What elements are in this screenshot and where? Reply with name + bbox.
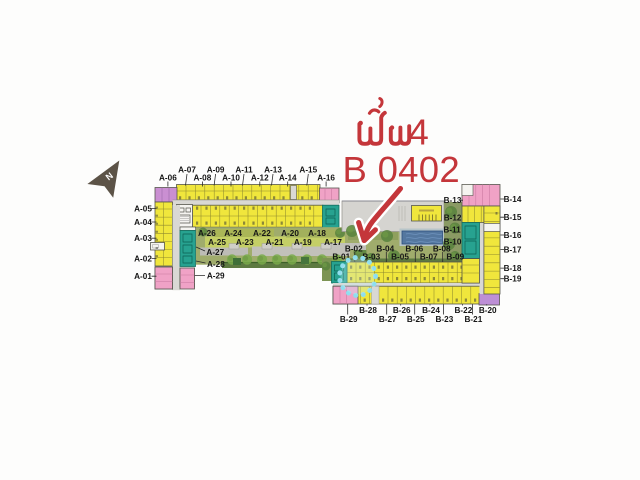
svg-text:A-18: A-18 bbox=[308, 229, 326, 238]
svg-text:B-13: B-13 bbox=[444, 196, 462, 205]
svg-text:B-19: B-19 bbox=[504, 275, 522, 284]
svg-text:B-05: B-05 bbox=[391, 252, 409, 261]
svg-text:B-15: B-15 bbox=[504, 213, 522, 222]
svg-text:B-09: B-09 bbox=[446, 252, 464, 261]
svg-text:B-28: B-28 bbox=[359, 306, 377, 315]
svg-text:B-25: B-25 bbox=[407, 315, 425, 324]
svg-text:A-03: A-03 bbox=[134, 234, 152, 243]
svg-text:A-25: A-25 bbox=[208, 238, 226, 247]
svg-text:B-23: B-23 bbox=[436, 315, 454, 324]
svg-text:B-14: B-14 bbox=[504, 195, 522, 204]
svg-text:B-26: B-26 bbox=[393, 306, 411, 315]
svg-text:A-15: A-15 bbox=[299, 166, 317, 175]
svg-text:B-18: B-18 bbox=[504, 264, 522, 273]
svg-text:A-21: A-21 bbox=[266, 238, 284, 247]
svg-text:A-01: A-01 bbox=[134, 272, 152, 281]
svg-text:A-24: A-24 bbox=[224, 229, 242, 238]
svg-text:A-28: A-28 bbox=[207, 260, 225, 269]
svg-text:A-02: A-02 bbox=[134, 255, 152, 264]
svg-text:B-29: B-29 bbox=[340, 315, 358, 324]
svg-text:A-04: A-04 bbox=[134, 218, 152, 227]
svg-text:A-19: A-19 bbox=[294, 238, 312, 247]
svg-text:A-10: A-10 bbox=[222, 173, 240, 182]
svg-text:B-22: B-22 bbox=[455, 306, 473, 315]
svg-text:A-17: A-17 bbox=[324, 238, 342, 247]
svg-text:B-20: B-20 bbox=[479, 306, 497, 315]
svg-text:A-20: A-20 bbox=[281, 229, 299, 238]
svg-text:B-10: B-10 bbox=[444, 238, 462, 247]
svg-text:A-14: A-14 bbox=[279, 173, 297, 182]
svg-text:B-16: B-16 bbox=[504, 231, 522, 240]
svg-text:A-05: A-05 bbox=[134, 204, 152, 213]
svg-text:A-06: A-06 bbox=[159, 173, 177, 182]
svg-text:B-12: B-12 bbox=[444, 214, 462, 223]
svg-text:A-12: A-12 bbox=[251, 173, 269, 182]
svg-text:B-07: B-07 bbox=[420, 252, 438, 261]
svg-text:4: 4 bbox=[409, 112, 429, 153]
svg-text:B-24: B-24 bbox=[422, 306, 440, 315]
svg-text:A-26: A-26 bbox=[198, 229, 216, 238]
svg-text:B-21: B-21 bbox=[465, 315, 483, 324]
svg-text:B-17: B-17 bbox=[504, 245, 522, 254]
svg-text:A-08: A-08 bbox=[194, 173, 212, 182]
svg-text:A-16: A-16 bbox=[317, 173, 335, 182]
svg-text:A-27: A-27 bbox=[206, 248, 224, 257]
svg-text:B-27: B-27 bbox=[379, 315, 397, 324]
svg-text:B-11: B-11 bbox=[443, 225, 461, 234]
svg-text:A-29: A-29 bbox=[207, 272, 225, 281]
svg-text:A-22: A-22 bbox=[253, 229, 271, 238]
svg-text:A-23: A-23 bbox=[236, 238, 254, 247]
